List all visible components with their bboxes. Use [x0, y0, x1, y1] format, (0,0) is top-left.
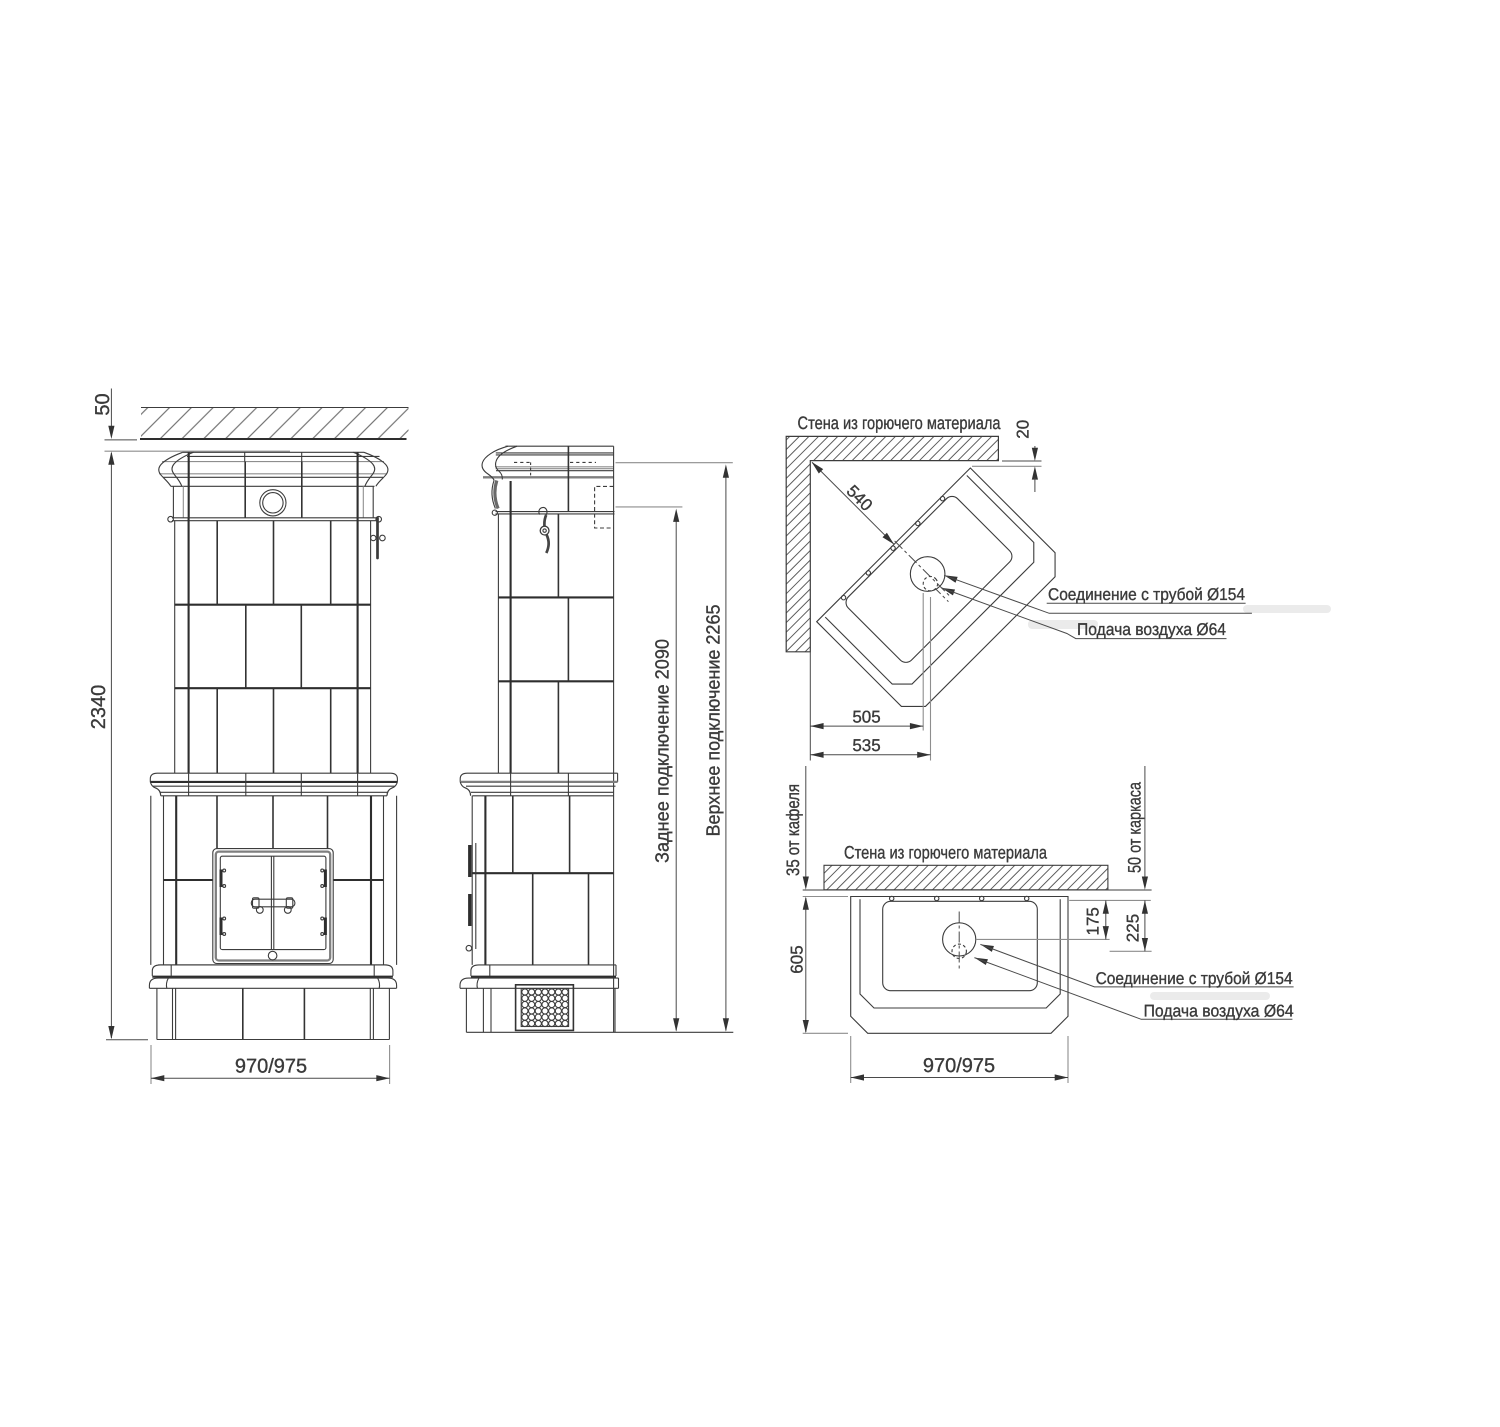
svg-text:35 от кафеля: 35 от кафеля: [783, 784, 803, 876]
svg-text:Соединение с трубой Ø154: Соединение с трубой Ø154: [1048, 585, 1245, 604]
svg-text:505: 505: [852, 707, 880, 726]
svg-text:535: 535: [852, 736, 880, 755]
svg-text:20: 20: [1014, 420, 1033, 439]
svg-text:175: 175: [1084, 907, 1103, 935]
svg-text:225: 225: [1124, 914, 1143, 942]
svg-text:Соединение с трубой Ø154: Соединение с трубой Ø154: [1096, 969, 1293, 988]
svg-text:Стена из горючего материала: Стена из горючего материала: [844, 843, 1048, 863]
svg-text:Подача воздуха Ø64: Подача воздуха Ø64: [1077, 620, 1226, 639]
svg-text:605: 605: [788, 945, 807, 973]
svg-text:50 от каркаса: 50 от каркаса: [1125, 781, 1145, 873]
svg-text:970/975: 970/975: [235, 1056, 307, 1078]
svg-text:50: 50: [92, 393, 114, 415]
svg-text:Стена из горючего материала: Стена из горючего материала: [798, 413, 1002, 433]
svg-text:Заднее подключение 2090: Заднее подключение 2090: [653, 639, 674, 863]
svg-text:Подача воздуха Ø64: Подача воздуха Ø64: [1144, 1001, 1294, 1020]
svg-text:Верхнее подключение 2265: Верхнее подключение 2265: [704, 605, 725, 837]
svg-text:970/975: 970/975: [923, 1055, 995, 1077]
svg-text:2340: 2340: [88, 685, 110, 730]
